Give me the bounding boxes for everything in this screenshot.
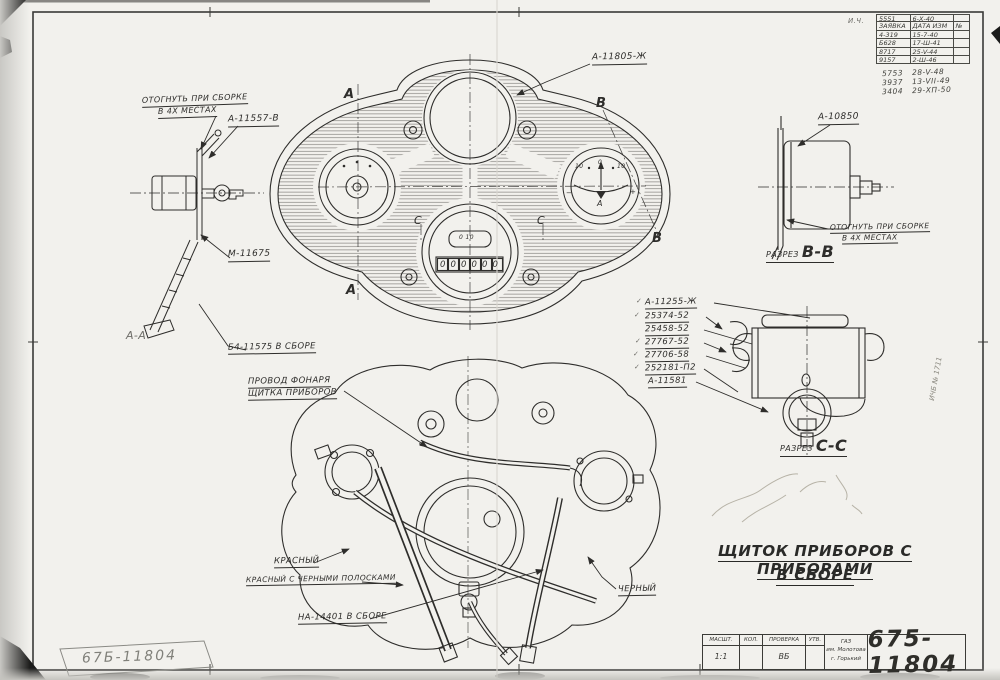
hw-num: 3404 [882,86,912,96]
odometer: 0 0 0 0 0 0 [438,259,501,272]
title-block-scale: МАСШТ. 1:1 [703,635,740,669]
approve-label: УТВ. [806,635,824,646]
odometer-digit: 0 [490,259,501,272]
title-block: МАСШТ. 1:1 КОЛ. ПРОВЕРКА ВБ УТВ. ГАЗ им.… [702,634,966,670]
revision-row: 55516-Х-40 [876,14,970,22]
label-m11675: М-11675 [228,250,271,263]
label-black: ЧЕРНЫЙ [618,585,657,597]
scale-label: МАСШТ. [703,635,739,646]
side-view-caption: А-А [126,330,146,342]
rev-cell [954,48,970,56]
section-letter-a-bottom: А [346,284,356,298]
drawing-title-line2: В СБОРЕ [695,566,935,584]
section-cc-caption: РАЗРЕЗС-С [780,437,847,457]
section-letter-b-bottom: В [652,232,662,246]
rev-cell: 5551 [876,14,911,22]
checkmark: ✓ [634,312,640,320]
label-a11557: А-11557-В [228,115,279,128]
rev-cell: 25-V-44 [911,48,954,56]
label-b4-11575: Б4-11575 В СБОРЕ [228,342,316,355]
scale-value: 1:1 [703,646,739,669]
ammeter-scale-right: 10 [617,164,625,171]
rev-header-cell: ЗАЯВКА [876,22,911,30]
rev-cell: 4-319 [876,31,911,39]
parts-list-item: 252181-П2 [645,364,696,376]
corner-stamp-number: 67Б-11804 [82,647,178,666]
parts-list-item: 25374-52 [645,312,689,324]
odometer-digit: 0 [480,259,491,272]
parts-list-item: 25458-52 [645,325,689,337]
bend-note-left-line2: В 4Х МЕСТАХ [158,106,217,119]
odometer-digit: 0 [448,259,459,272]
ammeter-scale-left: 10 [575,164,583,171]
rev-header-cell: ДАТА ИЗМ [911,22,954,30]
rev-cell: 17-Ш-41 [911,39,954,47]
section-letter-b-top: В [596,97,606,111]
rev-cell: Б628 [876,39,911,47]
revision-row: Б62817-Ш-41 [876,39,970,47]
odometer-digit: 0 [459,259,470,272]
rev-cell: 2-Ш-46 [911,56,954,64]
rev-cell: 6-Х-40 [911,14,954,22]
rev-cell: 9157 [876,56,911,64]
factory-line1: ГАЗ [825,638,867,646]
blueprint-sheet: ОТОГНУТЬ ПРИ СБОРКЕ В 4Х МЕСТАХ А-11557-… [0,0,1000,680]
odometer-digit: 0 [438,259,449,272]
parts-list-item: А-11255-Ж [645,298,697,310]
title-block-factory: ГАЗ им. Молотова г. Горький [825,635,868,669]
ammeter-minus: − [566,190,572,198]
rev-cell [954,39,970,47]
revision-table: 55516-Х-40 ЗАЯВКАДАТА ИЗМ№ 4-31915-7-40 … [876,14,970,64]
qty-label: КОЛ. [740,635,762,646]
section-cc-caption-letters: С-С [816,436,847,455]
factory-line2: им. Молотова [825,646,867,654]
upper-panel-view [270,54,670,330]
wire-note-line2: ЩИТКА ПРИБОРОВ [248,388,337,401]
revision-row: 4-31915-7-40 [876,31,970,39]
checkmark: ✓ [633,351,639,359]
revision-row: 91572-Ш-46 [876,56,970,64]
section-cc-caption-prefix: РАЗРЕЗ [780,444,813,453]
bend-note-right-line2: В 4Х МЕСТАХ [842,234,898,245]
revision-header-row: ЗАЯВКАДАТА ИЗМ№ [876,22,970,30]
paper-crease [496,0,498,680]
section-letter-c-left: С [414,215,422,227]
ammeter-plus: + [630,189,636,197]
title-block-qty: КОЛ. [740,635,763,669]
factory-line3: г. Горький [825,655,867,663]
label-a11805: А-11805-Ж [592,53,647,66]
hw-date: 29-ХП-50 [912,85,952,95]
label-red: КРАСНЫЙ [274,557,320,569]
odometer-digit: 0 [469,259,480,272]
revision-row: 871725-V-44 [876,48,970,56]
drawing-title-text2: В СБОРЕ [776,566,853,586]
checkmark: ✓ [634,364,640,372]
rev-cell [954,31,970,39]
checkmark: ✓ [635,338,641,346]
check-label: ПРОВЕРКА [763,635,805,646]
section-bb-caption-letters: В-В [802,242,834,261]
side-view-aa [130,130,264,338]
rev-header-cell: № [954,22,970,30]
rev-cell [954,14,970,22]
label-na14401: НА-14401 В СБОРЕ [298,612,387,625]
rev-cell: 15-7-40 [911,31,954,39]
section-letter-a-top: А [344,88,354,102]
pencil-marks [712,474,862,522]
title-block-approve: УТВ. [806,635,825,669]
label-a10850: А-10850 [818,113,859,126]
qty-value [740,646,762,669]
parts-list-item: 27767-52 [645,338,689,350]
approve-value [806,646,824,669]
section-bb-caption: РАЗРЕЗВ-В [766,243,834,263]
check-value: ВБ [763,646,805,669]
section-cc-view [730,306,884,458]
checkmark: ✓ [636,298,642,306]
ammeter-letter: А [597,200,603,209]
section-bb-caption-prefix: РАЗРЕЗ [766,250,799,259]
parts-list-item: 27706-58 [645,351,689,363]
speedo-window-text: 0 10 [459,235,474,242]
rev-cell [954,56,970,64]
corner-note: И.Ч. [848,18,864,26]
title-block-check: ПРОВЕРКА ВБ [763,635,806,669]
section-letter-c-right: С [537,215,545,227]
drawing-number: 675-11804 [868,634,966,670]
parts-list-item: А-11581 [648,377,687,389]
ammeter-scale-zero: 0 [598,160,602,167]
rev-cell: 8717 [876,48,911,56]
